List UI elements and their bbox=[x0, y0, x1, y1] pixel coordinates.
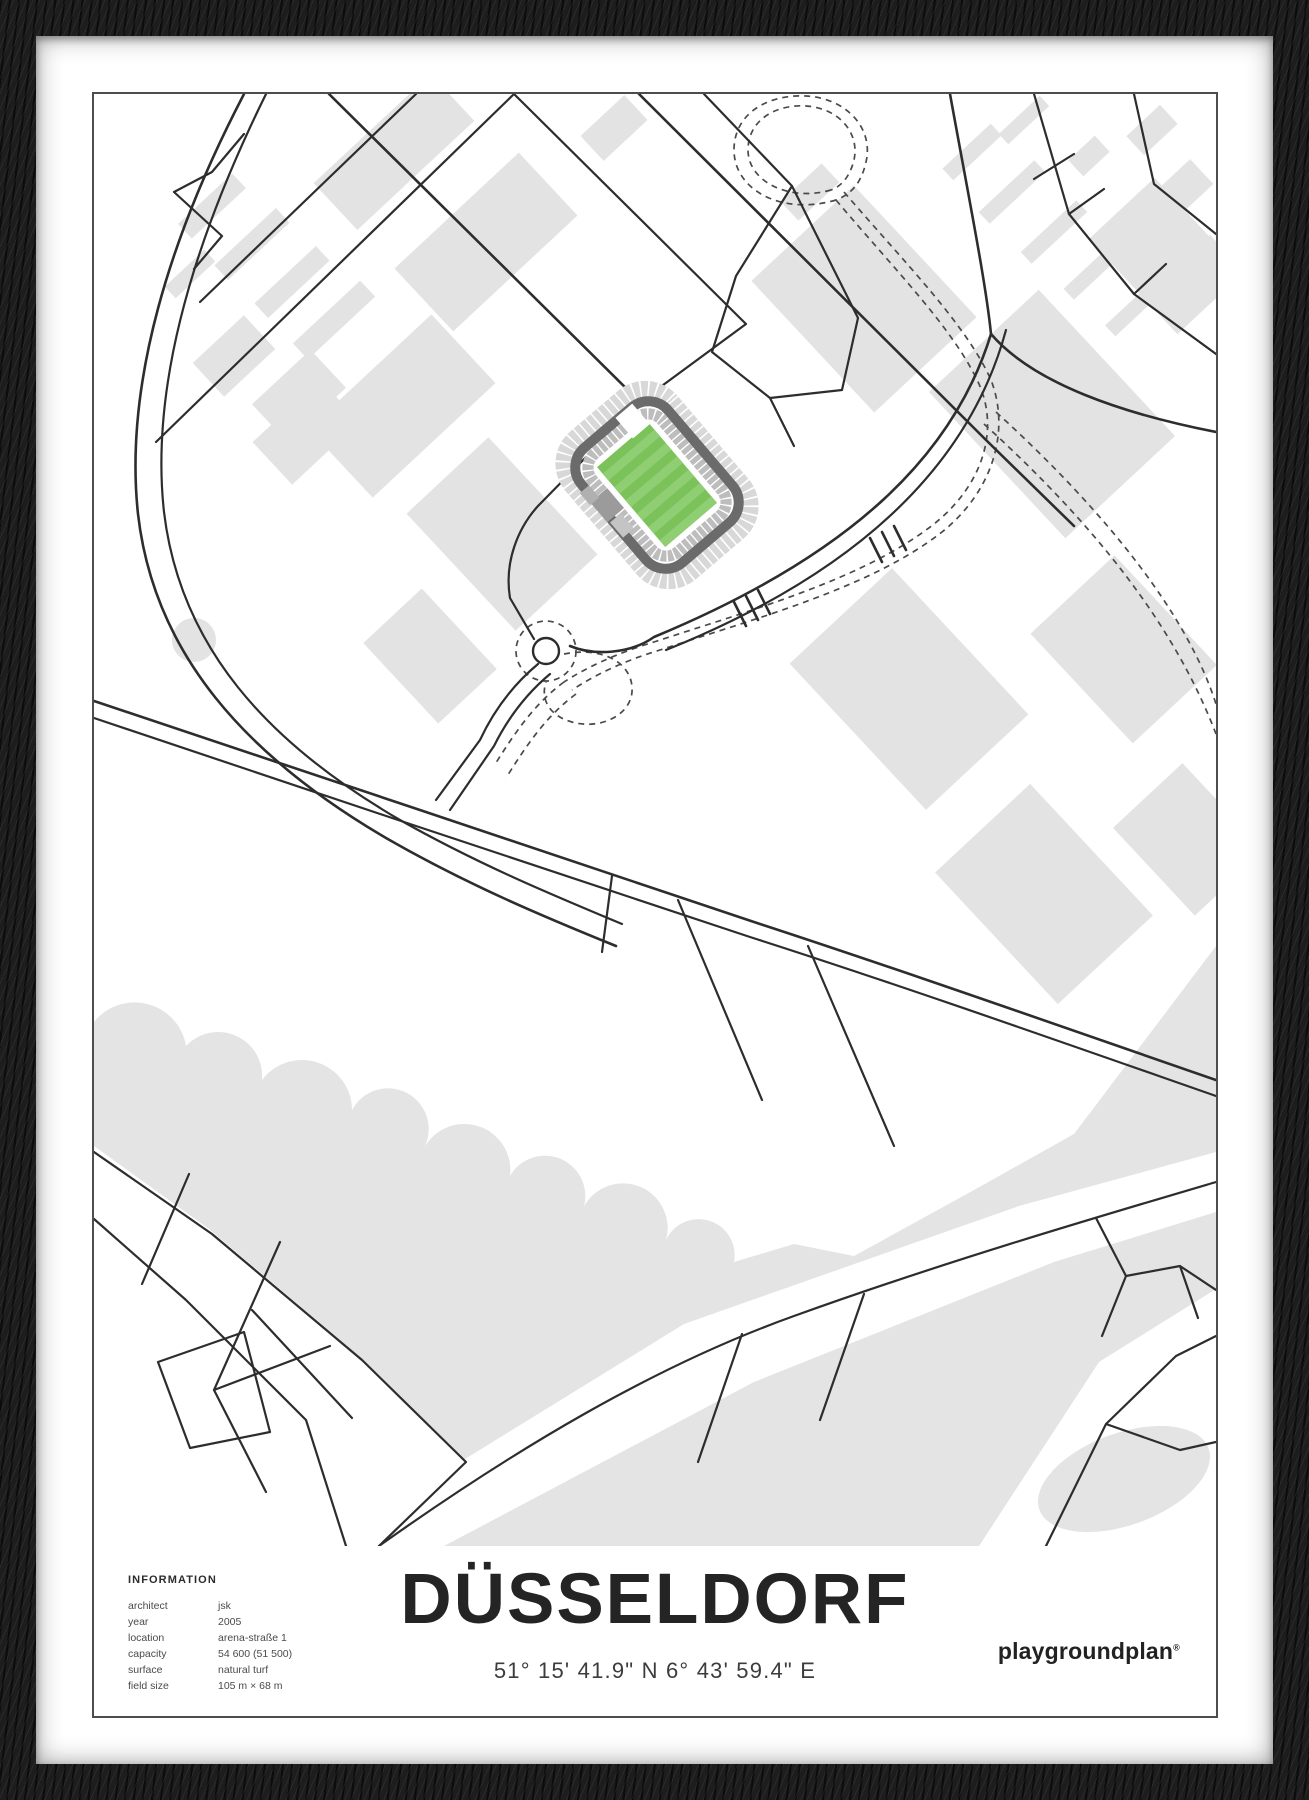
stadium-map bbox=[94, 94, 1216, 1546]
poster-footer: INFORMATION architectjskyear2005location… bbox=[94, 1546, 1216, 1716]
poster-title: DÜSSELDORF bbox=[94, 1564, 1216, 1635]
brand-name: playgroundplan bbox=[998, 1638, 1173, 1664]
map-river bbox=[94, 946, 1216, 1546]
framed-poster-photo: INFORMATION architectjskyear2005location… bbox=[0, 0, 1309, 1800]
brand-logo: playgroundplan® bbox=[998, 1638, 1180, 1665]
poster-print: INFORMATION architectjskyear2005location… bbox=[92, 92, 1218, 1718]
brand-registered-mark: ® bbox=[1173, 1642, 1180, 1652]
